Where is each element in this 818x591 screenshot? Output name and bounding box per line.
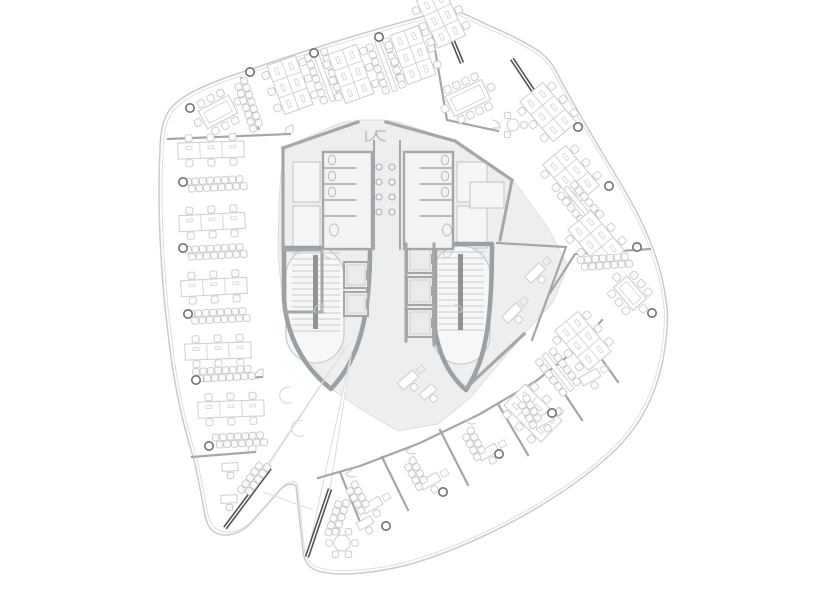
chair <box>231 440 238 447</box>
chair <box>592 255 599 262</box>
floor-plan-canvas <box>0 0 818 591</box>
chair <box>352 540 358 546</box>
core-room <box>470 182 504 208</box>
chair <box>596 262 603 269</box>
chair <box>192 246 199 253</box>
chair <box>186 160 193 167</box>
elevator-car <box>344 262 368 288</box>
chair <box>208 159 215 166</box>
chair <box>207 368 214 375</box>
sink-basin <box>376 194 382 200</box>
structural-column <box>205 442 213 450</box>
chair <box>204 375 211 382</box>
chair <box>332 551 338 557</box>
chair <box>242 433 249 440</box>
chair <box>238 440 245 447</box>
chair <box>202 310 209 317</box>
elevator-car <box>407 277 433 305</box>
chair <box>228 315 235 322</box>
core-room <box>293 162 320 202</box>
chair <box>188 272 195 279</box>
chair <box>614 254 621 261</box>
sink-basin <box>389 209 395 215</box>
chair <box>195 310 202 317</box>
sink-basin <box>376 209 382 215</box>
structural-column <box>179 178 187 186</box>
sink-basin <box>389 179 395 185</box>
chair <box>233 373 240 380</box>
stair-stringer <box>458 254 463 330</box>
chair <box>189 185 196 192</box>
chair <box>219 374 226 381</box>
chair <box>224 441 231 448</box>
chair <box>250 417 257 424</box>
chair <box>241 373 248 380</box>
chair <box>261 439 268 446</box>
chair <box>236 334 243 341</box>
chair <box>228 418 235 425</box>
chair <box>226 504 233 511</box>
desk-row <box>184 334 251 368</box>
chair <box>208 206 215 213</box>
structural-column <box>495 450 503 458</box>
chair <box>226 374 233 381</box>
elevator-car <box>344 292 368 316</box>
floor-plan-svg <box>0 0 818 591</box>
sink-basin <box>376 179 382 185</box>
structural-column <box>548 409 556 417</box>
chair <box>207 177 214 184</box>
chair <box>192 336 199 343</box>
desk-row <box>177 133 244 167</box>
structural-column <box>574 123 582 131</box>
chair <box>229 176 236 183</box>
chair <box>599 255 606 262</box>
chair <box>249 432 256 439</box>
chair <box>193 361 200 368</box>
chair <box>504 112 510 118</box>
core-room <box>457 206 487 248</box>
structural-column <box>648 309 656 317</box>
chair <box>230 158 237 165</box>
sink-basin <box>389 164 395 170</box>
chair <box>207 134 214 141</box>
stair-stringer <box>313 255 318 329</box>
chair <box>211 252 218 259</box>
chair <box>218 184 225 191</box>
toilet-block <box>404 152 453 249</box>
chair <box>200 368 207 375</box>
chair <box>214 335 221 342</box>
structural-column <box>375 33 383 41</box>
chair <box>240 183 247 190</box>
chair <box>229 366 236 373</box>
structural-column <box>382 522 390 530</box>
chair <box>234 433 241 440</box>
chair <box>229 133 236 140</box>
chair <box>199 178 206 185</box>
chair <box>225 251 232 258</box>
structural-column <box>186 104 194 112</box>
chair <box>246 440 253 447</box>
chair <box>243 315 250 322</box>
chair <box>199 317 206 324</box>
chair <box>581 263 588 270</box>
chair <box>225 183 232 190</box>
chair <box>227 393 234 400</box>
core-room <box>293 206 320 248</box>
chair <box>203 185 210 192</box>
sink-basin <box>389 194 395 200</box>
chair <box>589 263 596 270</box>
structural-column <box>439 488 447 496</box>
chair <box>611 261 618 268</box>
desk-row <box>178 204 246 239</box>
chair <box>332 529 338 535</box>
chair <box>233 251 240 258</box>
structural-column <box>605 182 613 190</box>
chair <box>196 185 203 192</box>
chair-strip <box>192 365 255 382</box>
chair <box>233 183 240 190</box>
chair <box>189 297 196 304</box>
chair <box>249 392 256 399</box>
structural-column <box>310 49 318 57</box>
chair <box>257 432 264 439</box>
chair <box>240 251 247 258</box>
chair <box>206 317 213 324</box>
chair <box>227 433 234 440</box>
chair <box>244 366 251 373</box>
chair <box>215 367 222 374</box>
chair <box>186 207 193 214</box>
desk-row <box>197 392 264 426</box>
chair <box>521 122 527 128</box>
chair <box>221 244 228 251</box>
chair <box>192 178 199 185</box>
chair <box>205 394 212 401</box>
chair <box>232 270 239 277</box>
chair <box>253 439 260 446</box>
chair <box>211 296 218 303</box>
chair <box>621 253 628 260</box>
chair <box>185 135 192 142</box>
chair <box>214 245 221 252</box>
chair <box>227 472 234 479</box>
chair <box>222 367 229 374</box>
chair <box>211 184 218 191</box>
chair <box>209 231 216 238</box>
chair <box>192 317 199 324</box>
chair <box>577 256 584 263</box>
chair <box>189 253 196 260</box>
chair <box>237 359 244 366</box>
chair <box>199 246 206 253</box>
chair <box>217 309 224 316</box>
elevator-car <box>407 309 433 337</box>
chair <box>584 256 591 263</box>
chair <box>220 434 227 441</box>
chair <box>230 205 237 212</box>
chair <box>232 308 239 315</box>
chair <box>231 230 238 237</box>
chair <box>214 177 221 184</box>
chair-strip <box>212 432 267 449</box>
chair <box>210 309 217 316</box>
chair <box>345 529 351 535</box>
chair <box>326 540 332 546</box>
desk-row <box>180 269 248 304</box>
chair <box>233 295 240 302</box>
chair-strip <box>184 175 247 192</box>
structural-column <box>633 243 641 251</box>
sink-basin <box>376 164 382 170</box>
chair <box>206 419 213 426</box>
chair <box>196 253 203 260</box>
chair <box>216 441 223 448</box>
chair <box>603 262 610 269</box>
chair <box>212 434 219 441</box>
chair <box>504 131 510 137</box>
chair <box>229 244 236 251</box>
chair <box>237 366 244 373</box>
chair-strip <box>184 243 247 260</box>
chair <box>215 360 222 367</box>
chair <box>236 176 243 183</box>
chair <box>207 245 214 252</box>
structural-column <box>246 68 254 76</box>
chair <box>187 232 194 239</box>
chair <box>236 315 243 322</box>
chair <box>203 253 210 260</box>
chair <box>192 368 199 375</box>
chair <box>618 261 625 268</box>
structural-column <box>179 244 187 252</box>
structural-column <box>192 376 200 384</box>
chair <box>345 551 351 557</box>
chair <box>214 316 221 323</box>
toilet-block <box>323 152 372 249</box>
chair <box>236 244 243 251</box>
chair <box>211 375 218 382</box>
chair-strip <box>187 307 250 324</box>
chair <box>218 252 225 259</box>
structural-column <box>184 310 192 318</box>
chair <box>221 316 228 323</box>
chair <box>210 271 217 278</box>
chair <box>626 260 633 267</box>
chair <box>239 308 246 315</box>
chair <box>607 254 614 261</box>
chair <box>248 373 255 380</box>
chair <box>221 176 228 183</box>
chair <box>224 308 231 315</box>
